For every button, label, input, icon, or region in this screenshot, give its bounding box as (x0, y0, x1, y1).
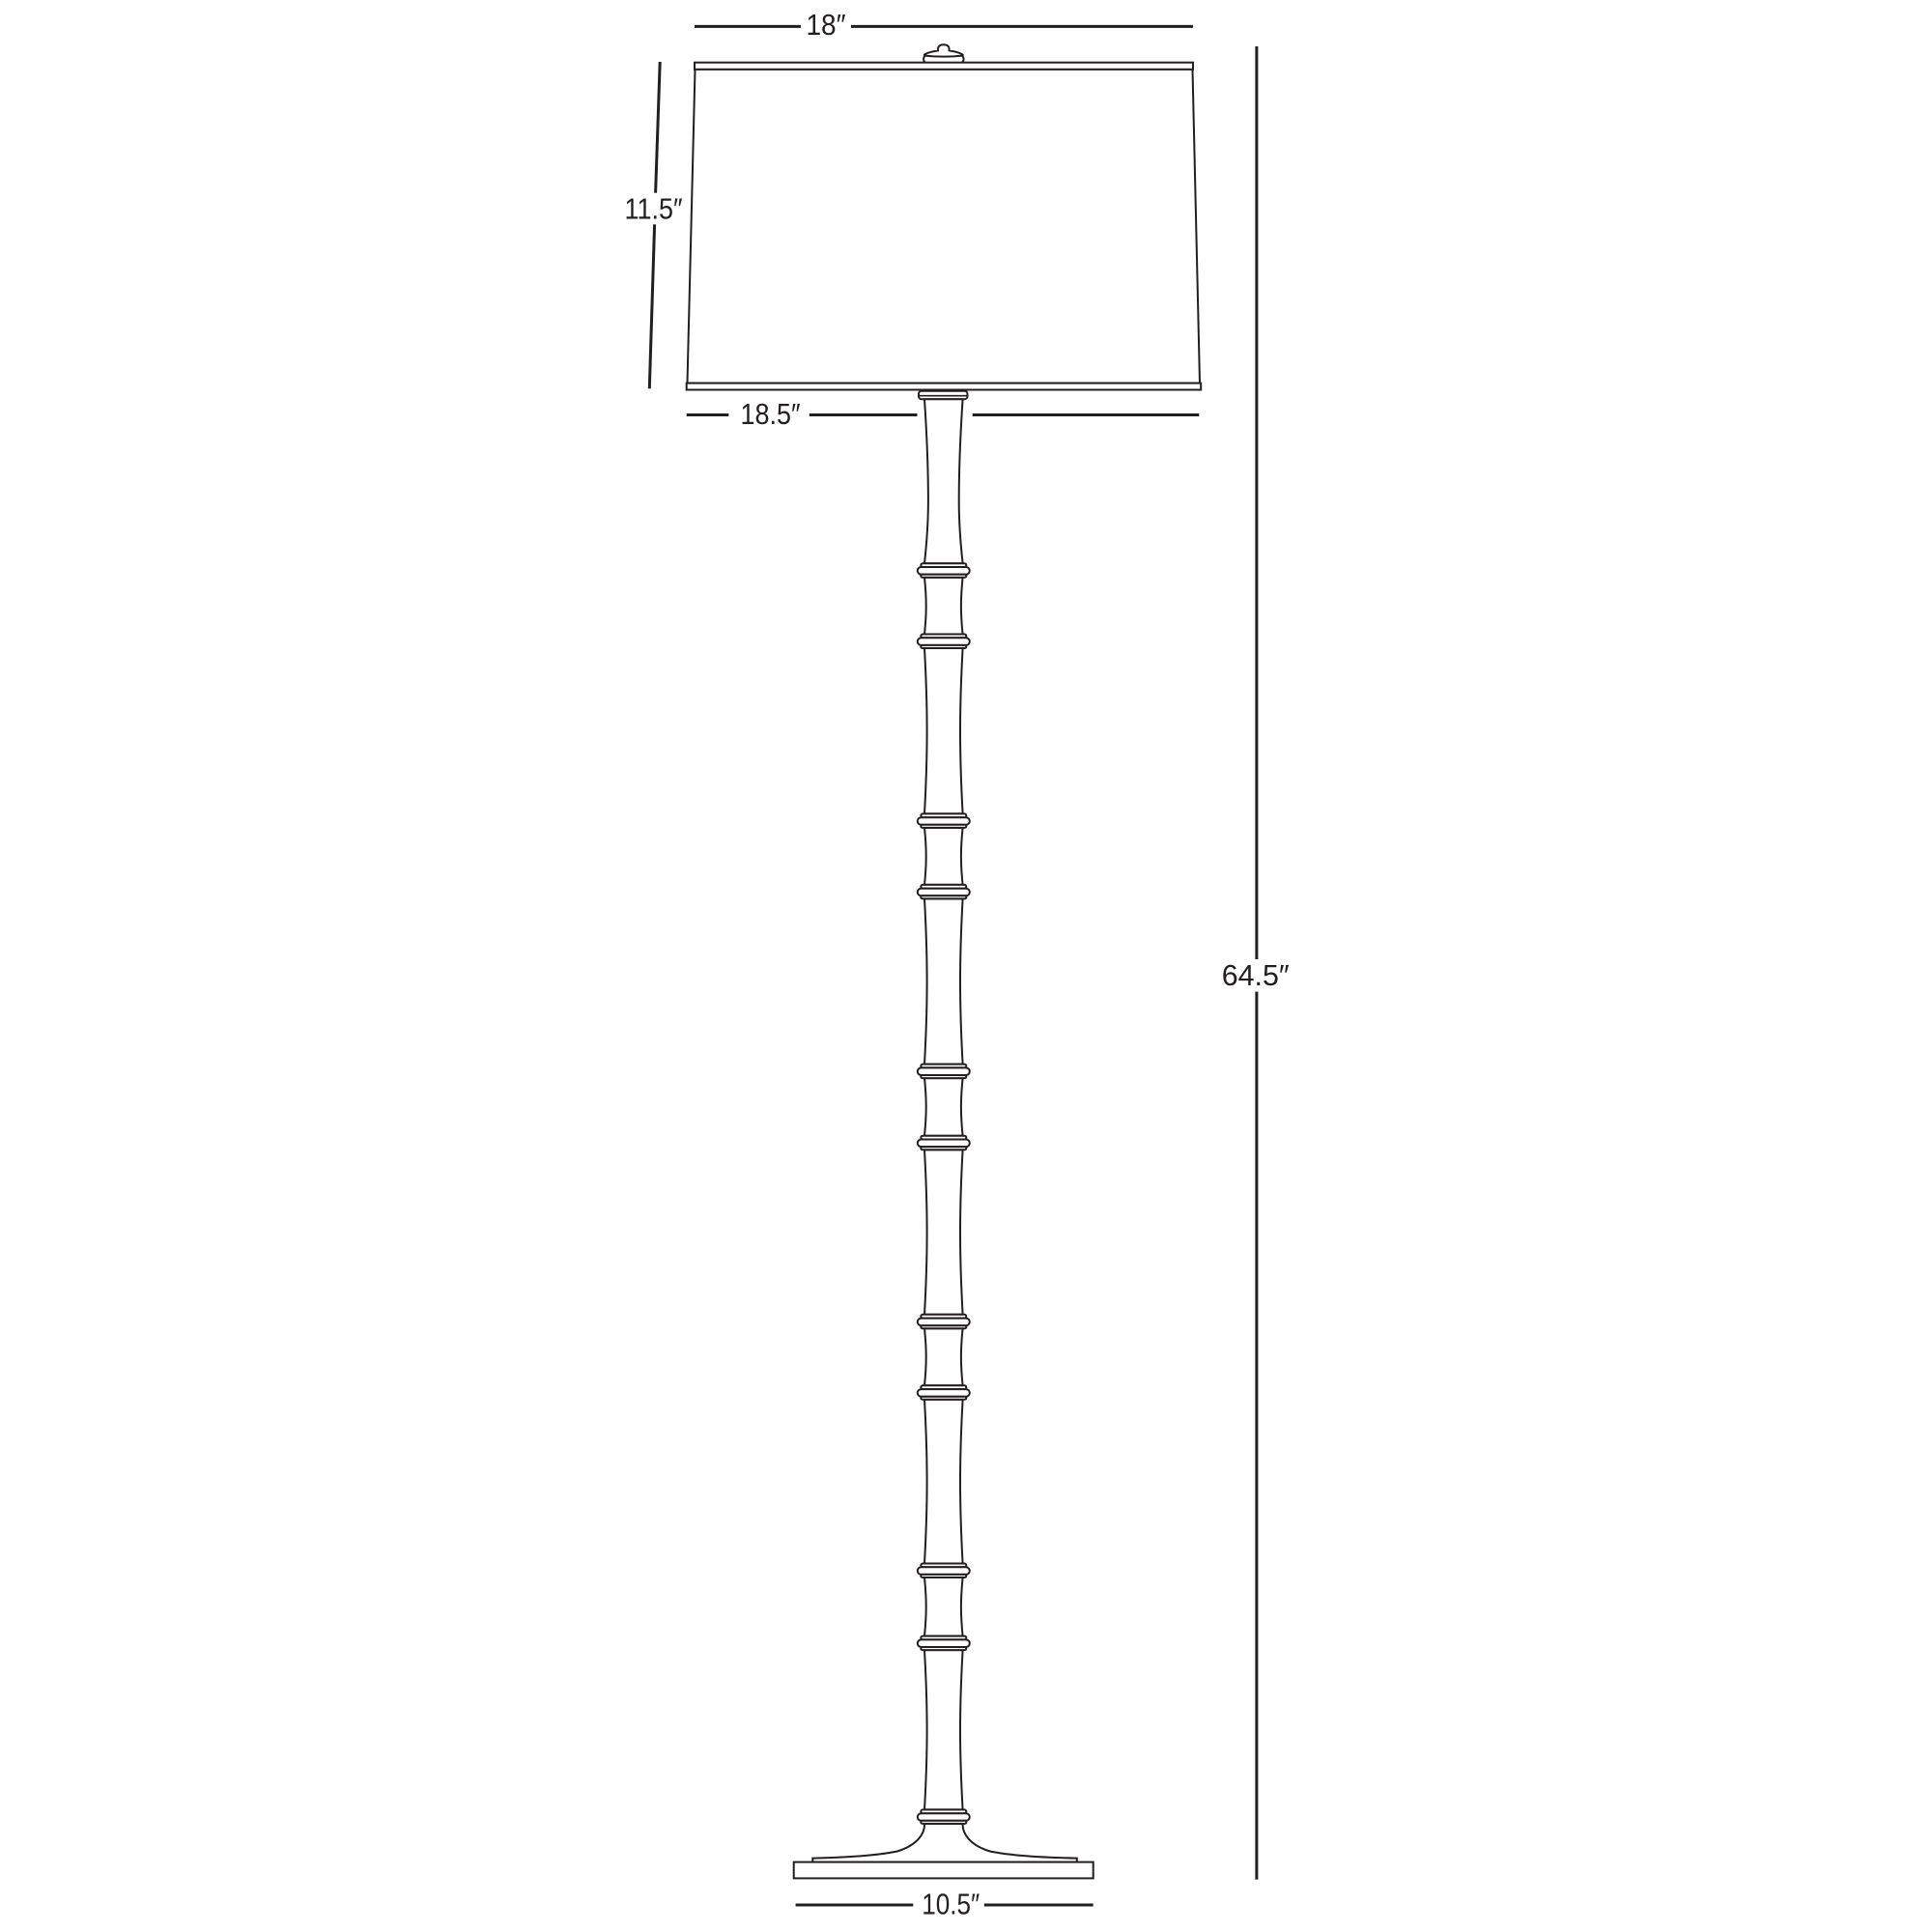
svg-text:64.5″: 64.5″ (1222, 958, 1290, 992)
svg-text:18.5″: 18.5″ (741, 397, 801, 431)
svg-text:11.5″: 11.5″ (625, 192, 683, 226)
svg-text:18″: 18″ (807, 8, 846, 42)
svg-text:10.5″: 10.5″ (922, 1887, 980, 1920)
